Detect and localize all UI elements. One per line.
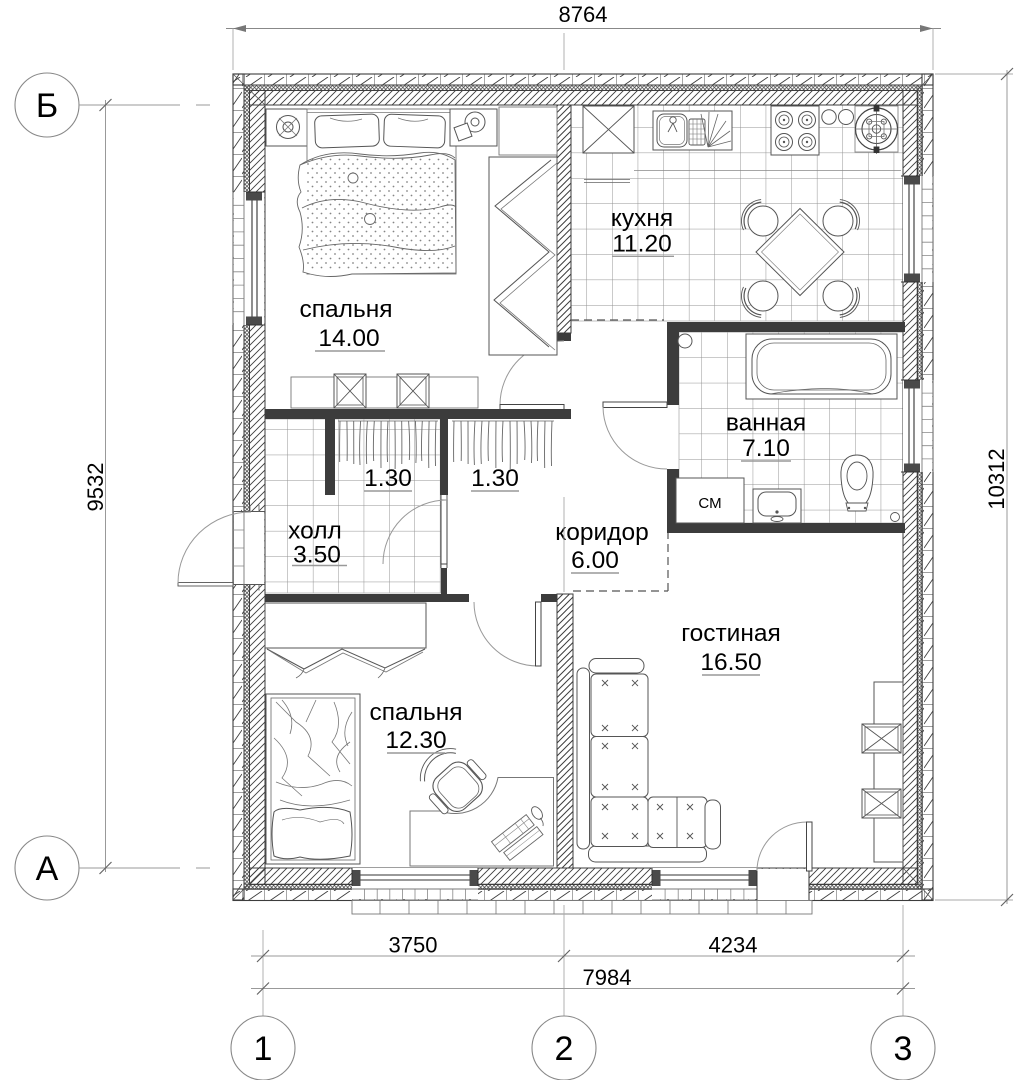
svg-text:16.50: 16.50 <box>700 649 761 676</box>
svg-text:коридор: коридор <box>555 519 648 546</box>
svg-text:7984: 7984 <box>583 965 632 990</box>
svg-text:1.30: 1.30 <box>364 465 412 492</box>
svg-text:3.50: 3.50 <box>293 542 341 569</box>
svg-text:1: 1 <box>254 1030 273 1068</box>
svg-text:спальня: спальня <box>370 699 463 726</box>
svg-text:СМ: СМ <box>698 495 721 512</box>
svg-text:6.00: 6.00 <box>571 547 619 574</box>
svg-text:3: 3 <box>894 1030 913 1068</box>
svg-text:11.20: 11.20 <box>612 231 672 258</box>
svg-text:10312: 10312 <box>984 448 1009 509</box>
svg-text:14.00: 14.00 <box>318 325 379 352</box>
svg-text:гостиная: гостиная <box>681 620 781 647</box>
svg-text:7.10: 7.10 <box>742 435 790 462</box>
svg-text:А: А <box>36 850 59 888</box>
svg-text:Б: Б <box>36 87 58 125</box>
svg-text:ванная: ванная <box>726 410 806 437</box>
svg-text:4234: 4234 <box>709 933 758 958</box>
svg-text:3750: 3750 <box>389 933 438 958</box>
svg-text:1.30: 1.30 <box>471 465 519 492</box>
svg-text:8764: 8764 <box>559 2 608 27</box>
svg-text:холл: холл <box>288 518 342 545</box>
svg-text:спальня: спальня <box>300 296 393 323</box>
svg-text:12.30: 12.30 <box>385 727 446 754</box>
svg-text:кухня: кухня <box>611 205 673 232</box>
svg-text:9532: 9532 <box>83 463 108 512</box>
svg-text:2: 2 <box>555 1030 574 1068</box>
